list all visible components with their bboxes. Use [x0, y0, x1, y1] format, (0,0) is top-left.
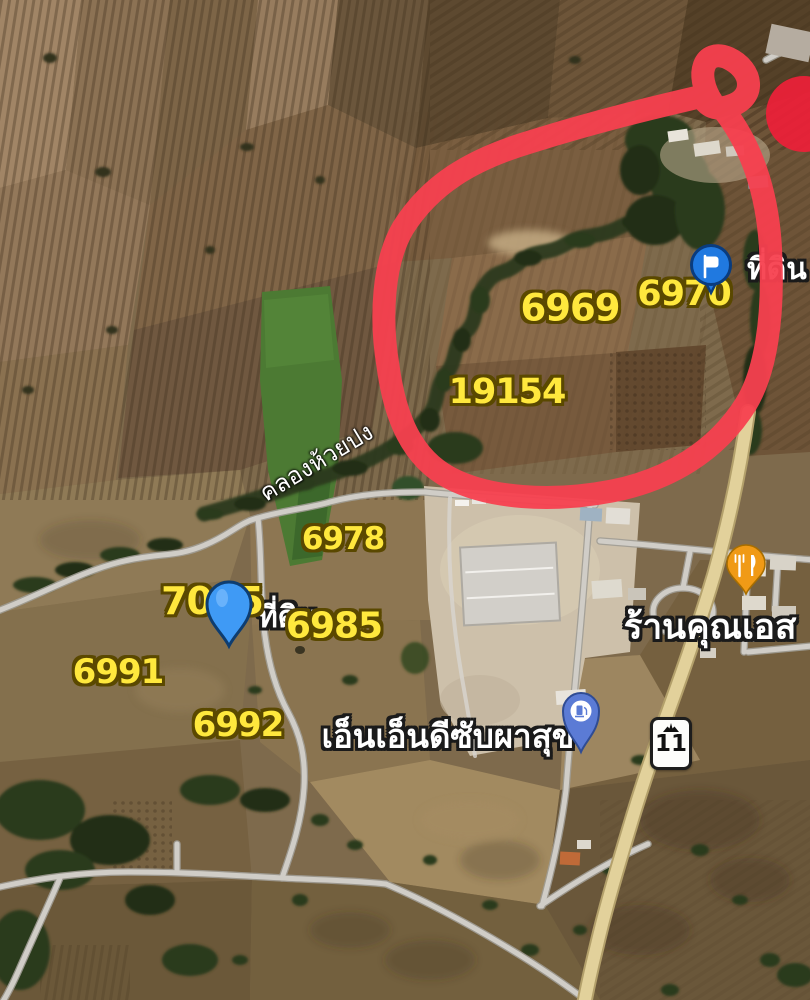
parcel-label-6992: 6992	[193, 705, 284, 745]
parcel-label-6985: 6985	[286, 606, 382, 647]
parcel-label-6978: 6978	[302, 521, 384, 557]
parcel-label-7045: 7045	[161, 579, 263, 623]
parcel-label-6970: 6970	[637, 274, 730, 314]
shop-label[interactable]: ร้านคุณเอส	[624, 600, 797, 655]
parcel-label-6969: 6969	[521, 287, 620, 330]
parcel-label-6991: 6991	[73, 652, 164, 692]
route-shield-11: 11	[650, 717, 692, 770]
land-label-top: ที่ดิน	[747, 246, 807, 293]
parcel-label-19154: 19154	[449, 372, 566, 412]
company-label[interactable]: เอ็นเอ็นดีซับผาสุข	[322, 710, 575, 763]
satellite-map[interactable]: คลองห้วยปง ที่ดิน 6969 6970 19154 6978 7…	[0, 0, 810, 1000]
satellite-imagery	[0, 0, 810, 1000]
route-number: 11	[655, 733, 687, 756]
